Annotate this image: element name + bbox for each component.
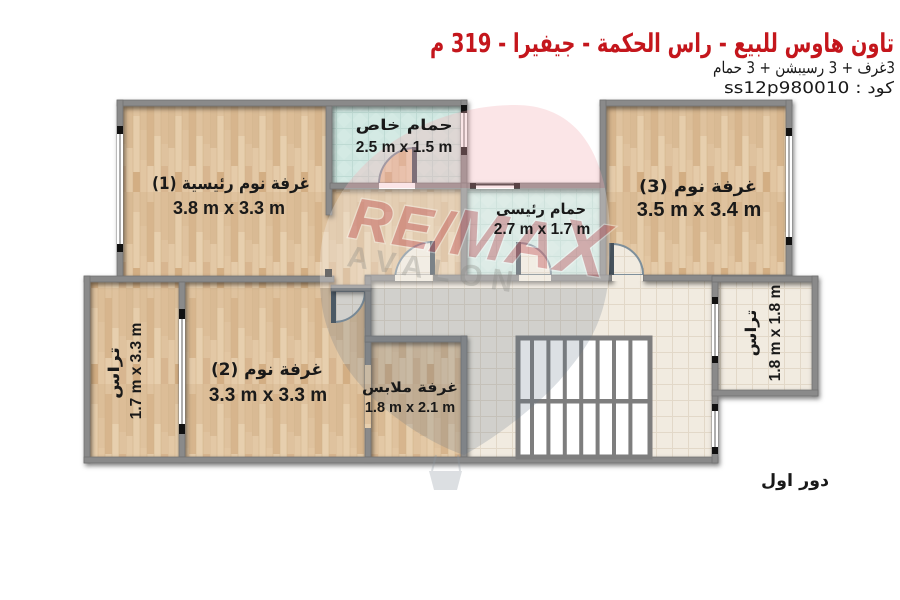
- svg-text:1.8 m x 1.8 m: 1.8 m x 1.8 m: [767, 285, 784, 382]
- svg-text:3.3 m x 3.3 m: 3.3 m x 3.3 m: [209, 385, 327, 406]
- svg-text:3.5 m x 3.4 m: 3.5 m x 3.4 m: [637, 199, 762, 221]
- svg-text:2.7 m x 1.7 m: 2.7 m x 1.7 m: [494, 221, 591, 238]
- svg-text:3.8 m x 3.3 m: 3.8 m x 3.3 m: [173, 198, 285, 218]
- svg-text:1.8 m x 2.1 m: 1.8 m x 2.1 m: [365, 400, 455, 416]
- svg-text:1.7 m x 3.3 m: 1.7 m x 3.3 m: [128, 323, 145, 420]
- svg-text:2.5 m x 1.5 m: 2.5 m x 1.5 m: [356, 139, 453, 156]
